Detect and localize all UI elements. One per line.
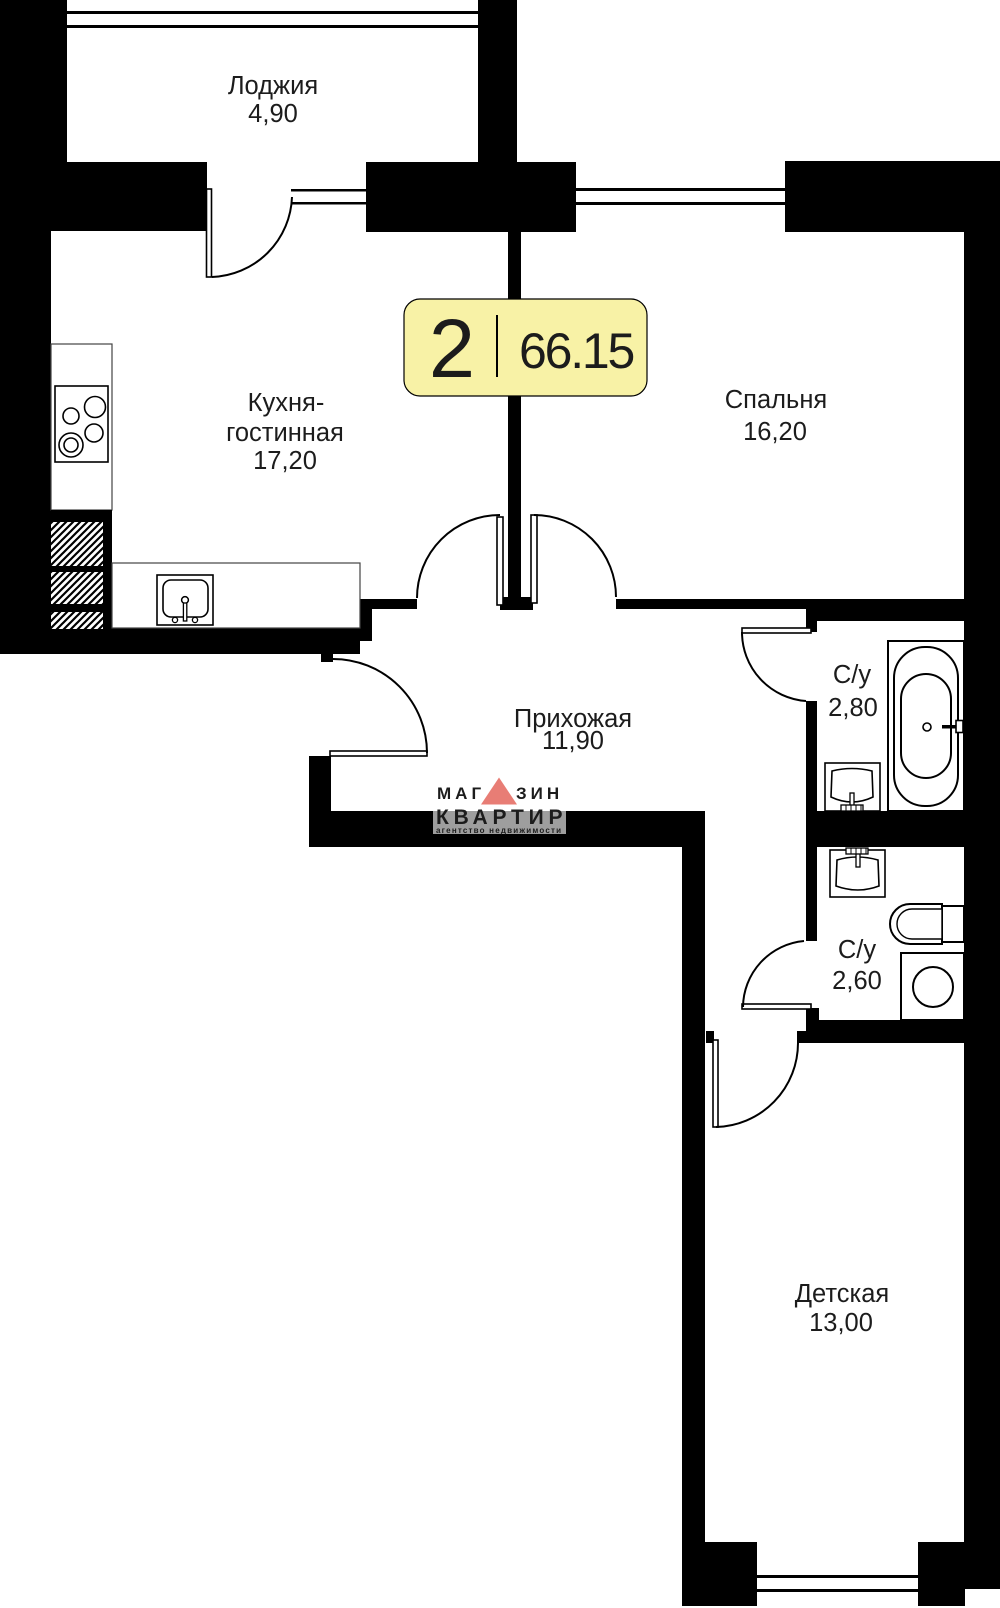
- svg-text:2,60: 2,60: [832, 967, 882, 995]
- svg-text:агентство недвижимости: агентство недвижимости: [436, 826, 562, 835]
- svg-text:С/у: С/у: [833, 661, 872, 689]
- svg-text:гостинная: гостинная: [226, 419, 344, 447]
- svg-text:11,90: 11,90: [542, 727, 604, 755]
- svg-text:66.15: 66.15: [519, 323, 634, 379]
- svg-text:13,00: 13,00: [809, 1309, 873, 1337]
- svg-text:ЗИН: ЗИН: [516, 784, 563, 803]
- svg-text:Спальня: Спальня: [725, 386, 827, 414]
- svg-text:С/у: С/у: [838, 936, 877, 964]
- svg-text:Кухня-: Кухня-: [248, 389, 325, 417]
- svg-text:16,20: 16,20: [743, 418, 807, 446]
- svg-text:2,80: 2,80: [828, 694, 878, 722]
- svg-text:Детская: Детская: [795, 1280, 889, 1308]
- svg-text:2: 2: [429, 302, 475, 395]
- svg-text:4,90: 4,90: [248, 100, 298, 128]
- svg-text:17,20: 17,20: [253, 447, 317, 475]
- svg-text:МАГ: МАГ: [437, 784, 485, 803]
- svg-text:Лоджия: Лоджия: [228, 72, 318, 100]
